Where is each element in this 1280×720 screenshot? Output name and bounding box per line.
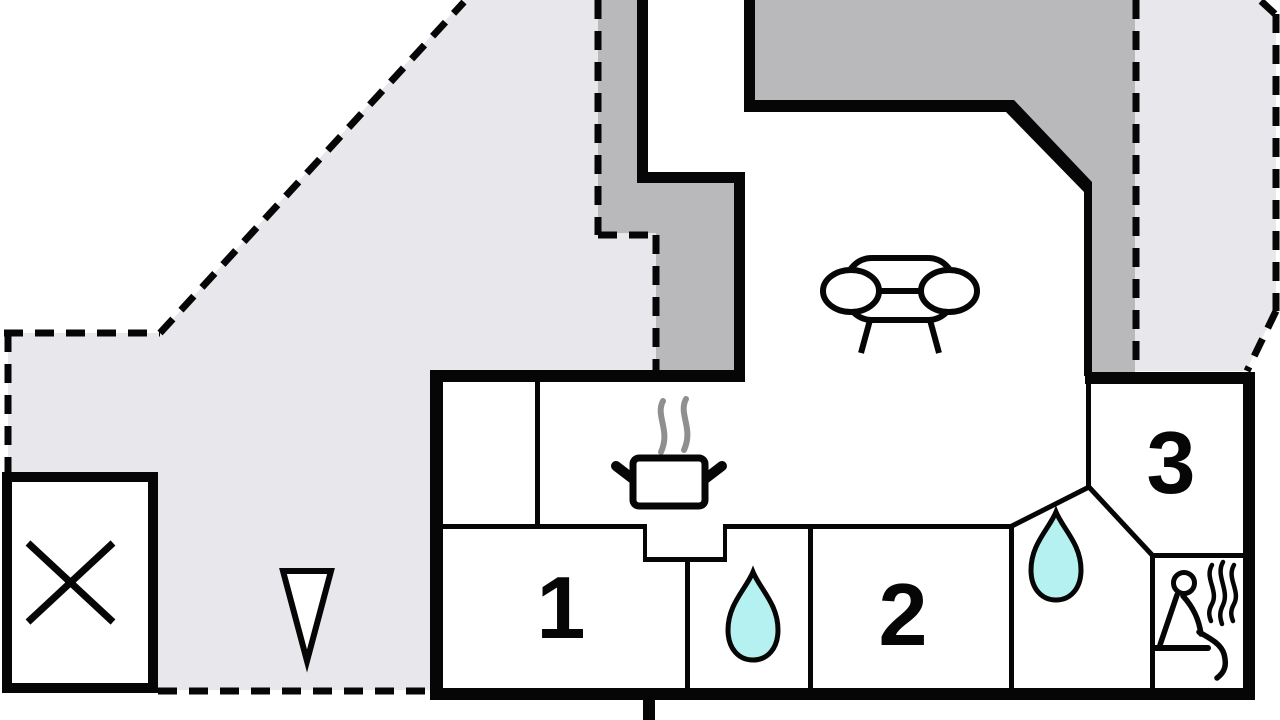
- sofa-leg: [930, 320, 939, 353]
- wall-segment: [535, 378, 540, 528]
- wall-segment: [1084, 182, 1092, 376]
- terrace-right: [1135, 0, 1276, 371]
- wall-segment: [808, 524, 813, 690]
- wall-segment: [443, 524, 647, 529]
- wall-segment: [1243, 372, 1255, 700]
- sofa-armrest: [921, 270, 977, 312]
- steam-icon: [661, 401, 665, 452]
- person-leg: [1199, 632, 1225, 678]
- wall-segment: [1150, 553, 1155, 690]
- sofa-armrest: [823, 270, 879, 312]
- steam-icon: [1220, 562, 1225, 624]
- wall-segment: [430, 370, 745, 382]
- wall-segment: [1009, 524, 1014, 690]
- wall-segment: [685, 558, 690, 690]
- water-drop-icon: [1031, 512, 1081, 600]
- wall-segment: [744, 100, 1014, 112]
- room-label-3: 3: [1147, 413, 1196, 512]
- room-labels: 1 2 3: [537, 413, 1196, 664]
- sauna-person-icon: [1155, 562, 1236, 678]
- wall-segment: [637, 172, 745, 183]
- wall-segment: [1150, 553, 1243, 558]
- sofa-leg: [861, 320, 870, 353]
- water-drop-shape: [1031, 512, 1081, 600]
- wall-segment: [723, 524, 727, 562]
- sofa-icon: [823, 258, 977, 353]
- wall-segment: [643, 688, 655, 720]
- floor-plan-svg: 1 2 3: [0, 0, 1280, 720]
- wall-segment: [1086, 382, 1091, 489]
- wall-segment: [744, 0, 755, 112]
- wall-segment: [643, 524, 647, 562]
- floor-plan-page: 1 2 3: [0, 0, 1280, 720]
- crossed-box-outline: [7, 477, 153, 688]
- cooking-pot-icon: [616, 399, 722, 506]
- wall-segment: [430, 370, 443, 700]
- room-label-1: 1: [537, 558, 586, 657]
- wall-segment: [1085, 372, 1255, 384]
- water-drop-shape: [728, 572, 778, 660]
- pot-body: [633, 458, 705, 506]
- person-torso: [1183, 596, 1201, 634]
- crossed-box-icon: [7, 477, 153, 688]
- water-drop-icon: [728, 572, 778, 660]
- person-head: [1174, 573, 1195, 594]
- wall-segment: [725, 524, 1011, 529]
- person-arm: [1160, 595, 1177, 645]
- wall-segment: [430, 688, 1255, 700]
- wall-segment: [637, 0, 648, 183]
- steam-icon: [1209, 565, 1214, 621]
- wall-segment-diagonal: [1088, 486, 1153, 556]
- steam-icon: [684, 399, 688, 450]
- walls-thin-diagonals: [1010, 486, 1153, 556]
- room-label-2: 2: [879, 565, 928, 664]
- steam-icon: [1231, 565, 1236, 621]
- wall-segment: [734, 172, 745, 382]
